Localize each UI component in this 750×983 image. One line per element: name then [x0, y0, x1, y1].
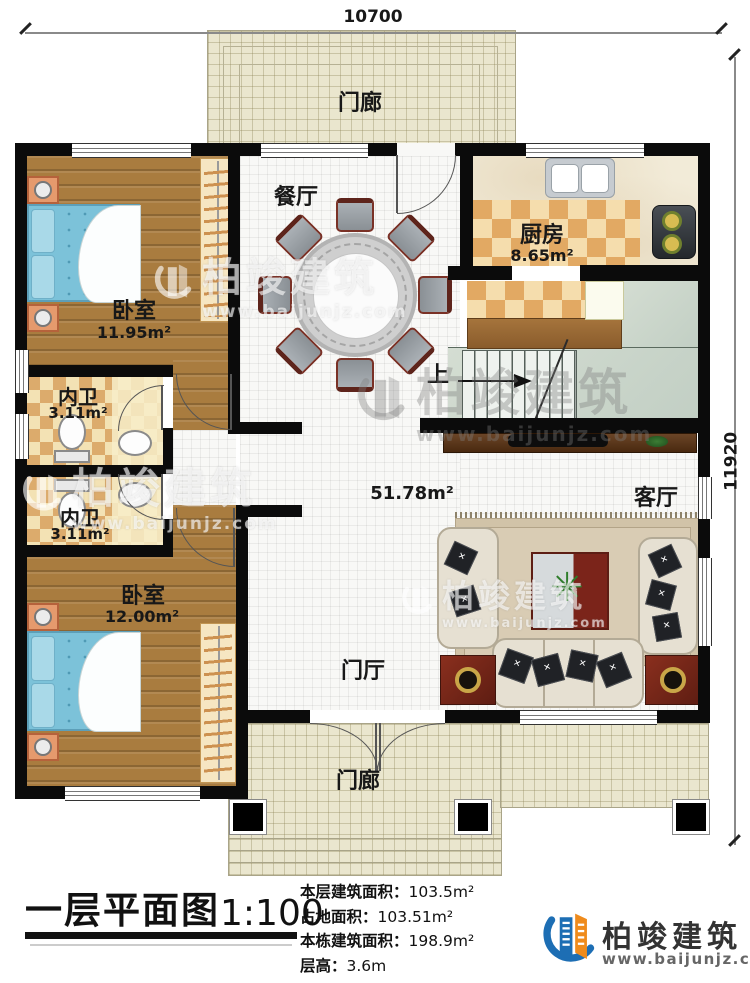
wardrobe-hangers	[204, 628, 232, 778]
dining-table-top	[313, 253, 399, 339]
tv	[508, 434, 608, 447]
toilet-tank	[54, 450, 90, 463]
plan-title: 一层平面图 1:100	[25, 880, 324, 934]
table-lamp	[660, 667, 686, 693]
entry-door-leaf	[396, 155, 398, 213]
window	[698, 558, 712, 646]
stairs-up-arrow-shaft	[458, 380, 514, 382]
stove-burner	[662, 234, 682, 254]
column	[230, 800, 266, 834]
stairs-up-label: 上	[424, 364, 452, 388]
bedroom1-label: 卧室	[84, 300, 184, 324]
sofa-pillow: ✕	[652, 612, 682, 642]
stair-hall-floor-upper	[620, 281, 698, 347]
window	[261, 143, 368, 158]
bedroom2-door-leaf	[233, 508, 235, 566]
stat-value: 3.6m	[347, 957, 387, 975]
bed-pillow	[31, 255, 55, 299]
stove-burner	[662, 211, 682, 231]
stat-row: 层高：3.6m	[300, 954, 474, 979]
kitchen-label: 厨房	[492, 224, 592, 248]
kitchen-area: 8.65m²	[492, 247, 592, 265]
wall	[15, 365, 173, 377]
dimension-line-top	[25, 32, 722, 34]
bed-pillow	[31, 636, 55, 681]
bedroom2-label: 卧室	[93, 585, 193, 609]
stat-label: 占地面积：	[300, 908, 378, 926]
stat-row: 占地面积：103.51m²	[300, 905, 474, 930]
bed-pillow	[31, 209, 55, 253]
brand-url: www.baijunjz.com	[602, 950, 750, 968]
wall	[448, 266, 512, 280]
sink-basin	[581, 164, 609, 193]
bath1-area: 3.11m²	[28, 405, 128, 422]
porch-door-leaf	[379, 723, 381, 771]
toilet-tank	[54, 479, 90, 492]
wall	[248, 505, 302, 517]
side-table	[440, 655, 496, 705]
porch-door-leaf	[375, 723, 377, 771]
stat-row: 本层建筑面积：103.5m²	[300, 880, 474, 905]
kitchen-nook-floor	[467, 281, 585, 318]
kitchen-appliance	[585, 281, 624, 320]
central-area-label: 51.78m²	[362, 484, 462, 504]
dining-chair	[336, 358, 374, 392]
console-plant	[646, 436, 668, 447]
stairs-up-arrow-head	[514, 374, 532, 388]
porch-step	[228, 862, 502, 876]
stat-value: 103.51m²	[378, 908, 454, 926]
wall	[163, 519, 173, 557]
sink	[118, 430, 152, 456]
table-lamp	[455, 667, 481, 693]
sink-basin	[551, 164, 579, 193]
terrace-floor	[500, 723, 709, 808]
wall	[15, 545, 163, 557]
wall	[460, 143, 473, 266]
stat-value: 103.5m²	[409, 883, 475, 901]
stats-block: 本层建筑面积：103.5m² 占地面积：103.51m² 本栋建筑面积：198.…	[300, 880, 474, 978]
bedroom2-area: 12.00m²	[92, 608, 192, 626]
sofa-pillow: ✕	[565, 649, 598, 682]
nightstand	[27, 603, 59, 631]
nightstand	[27, 304, 59, 332]
window	[15, 350, 29, 393]
column	[673, 800, 709, 834]
wall	[580, 265, 710, 281]
porch-bottom-label: 门廊	[308, 770, 408, 794]
side-table	[645, 655, 701, 705]
window	[15, 414, 29, 459]
nightstand	[27, 176, 59, 204]
floor-plan: 10700 11920 门廊 上	[0, 0, 750, 983]
dimension-height-label: 11920	[723, 431, 742, 491]
living-label: 客厅	[606, 487, 706, 511]
window	[526, 143, 644, 158]
wardrobe	[200, 623, 236, 783]
rug-fringe	[455, 512, 698, 518]
dining-chair	[258, 276, 292, 314]
bath1-door-leaf	[161, 385, 163, 430]
coffee-table-plant: ✳	[545, 566, 589, 610]
wall	[420, 418, 710, 433]
stat-label: 层高：	[300, 957, 347, 975]
kitchen-nook-counter	[467, 318, 622, 349]
stove	[652, 205, 696, 259]
dimension-width-label: 10700	[323, 8, 423, 27]
bed-pillow	[31, 683, 55, 728]
bath2-door-leaf	[161, 474, 163, 519]
window	[72, 143, 191, 158]
bedroom1-area: 11.95m²	[84, 324, 184, 342]
title-underline-thin	[30, 944, 292, 946]
bedroom1-door-leaf	[230, 374, 232, 429]
wall	[163, 428, 173, 474]
stat-label: 本栋建筑面积：	[300, 932, 409, 950]
foyer-label: 门厅	[313, 660, 413, 684]
column	[455, 800, 491, 834]
title-underline-thick	[25, 932, 297, 939]
hall-floor	[173, 430, 236, 505]
window	[520, 710, 657, 725]
dining-chair	[418, 276, 452, 314]
stat-label: 本层建筑面积：	[300, 883, 409, 901]
brand-logo-icon	[538, 906, 596, 976]
porch-top-label: 门廊	[310, 92, 410, 116]
kitchen-sink	[545, 158, 615, 198]
wall	[236, 505, 248, 798]
nightstand	[27, 733, 59, 761]
stat-row: 本栋建筑面积：198.9m²	[300, 929, 474, 954]
window	[65, 786, 200, 801]
wardrobe-hangers	[204, 163, 229, 317]
stat-value: 198.9m²	[409, 932, 475, 950]
bath2-area: 3.11m²	[30, 526, 130, 543]
wall	[240, 422, 302, 434]
plan-title-text: 一层平面图	[25, 880, 220, 934]
wall	[238, 710, 310, 723]
dining-label: 餐厅	[246, 186, 346, 210]
